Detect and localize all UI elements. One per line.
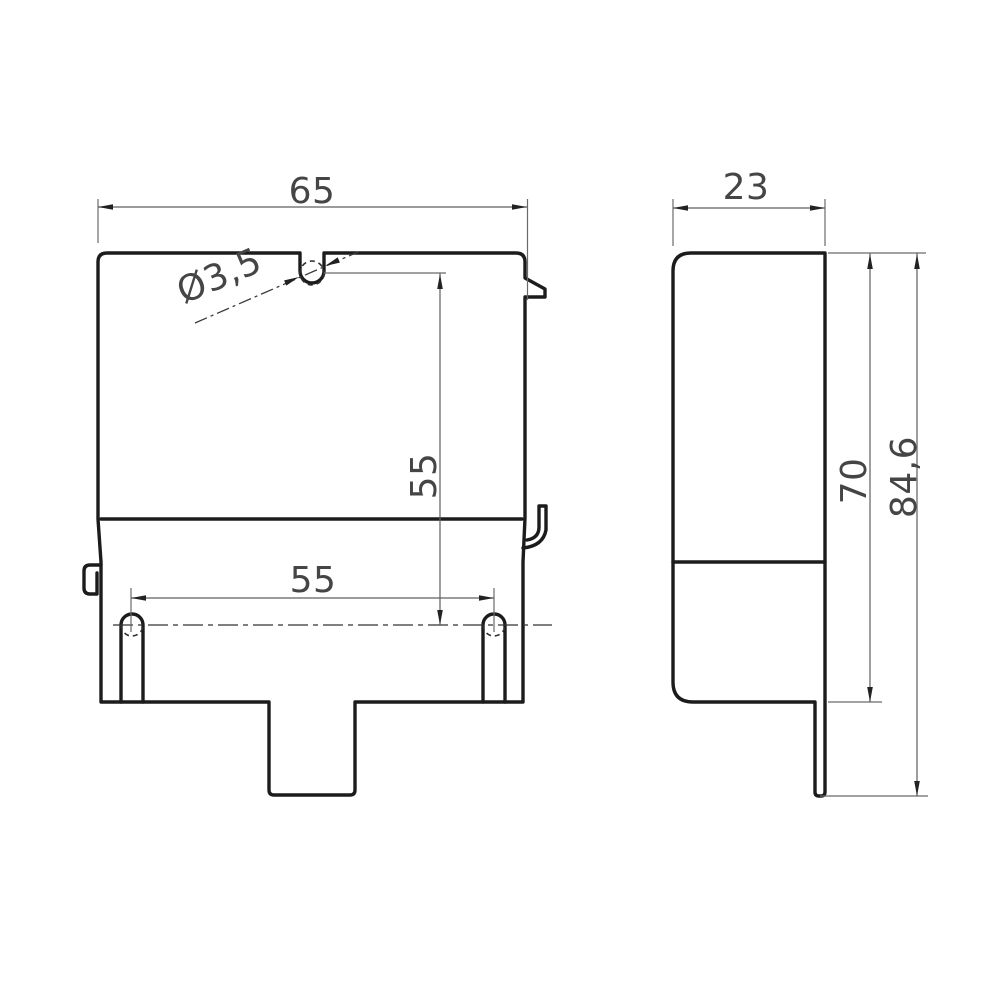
arrowhead [867, 687, 873, 702]
dimension-label: 70 [834, 458, 875, 505]
drawing-canvas: 65 Ø3,5 55 55 23 70 [0, 0, 1000, 1000]
dimension-label: 65 [289, 171, 336, 212]
arrowhead [810, 205, 825, 211]
technical-drawing: 65 Ø3,5 55 55 23 70 [0, 0, 1000, 1000]
arrowhead [437, 610, 443, 625]
arrowhead [98, 204, 113, 210]
front-view [84, 253, 552, 795]
dimension-label: Ø3,5 [171, 240, 268, 312]
arrowhead [673, 205, 688, 211]
front-view-outline [98, 253, 545, 795]
arrowhead [512, 204, 527, 210]
arrowhead [325, 257, 340, 266]
dimension-label: 23 [723, 167, 770, 208]
dim-side-depth: 23 [673, 167, 825, 246]
dim-hole-center-height: 55 [324, 273, 446, 625]
arrowhead [437, 274, 443, 289]
arrowhead [284, 277, 299, 286]
arrowhead [131, 595, 146, 601]
dimension-label: 55 [404, 453, 445, 500]
front-left-slot [121, 614, 143, 702]
dimension-label: 55 [290, 560, 337, 601]
arrowhead [867, 254, 873, 269]
dim-front-overall-width: 65 [98, 171, 528, 300]
side-view [673, 253, 825, 796]
side-view-outline [673, 253, 825, 796]
arrowhead [914, 254, 920, 269]
arrowhead [479, 595, 494, 601]
dim-side-overall-height: 84,6 [820, 253, 928, 796]
arrowhead [914, 781, 920, 796]
front-left-hook [84, 565, 101, 594]
dimension-label: 84,6 [884, 436, 925, 518]
left-hole-hidden-arc [121, 625, 143, 636]
